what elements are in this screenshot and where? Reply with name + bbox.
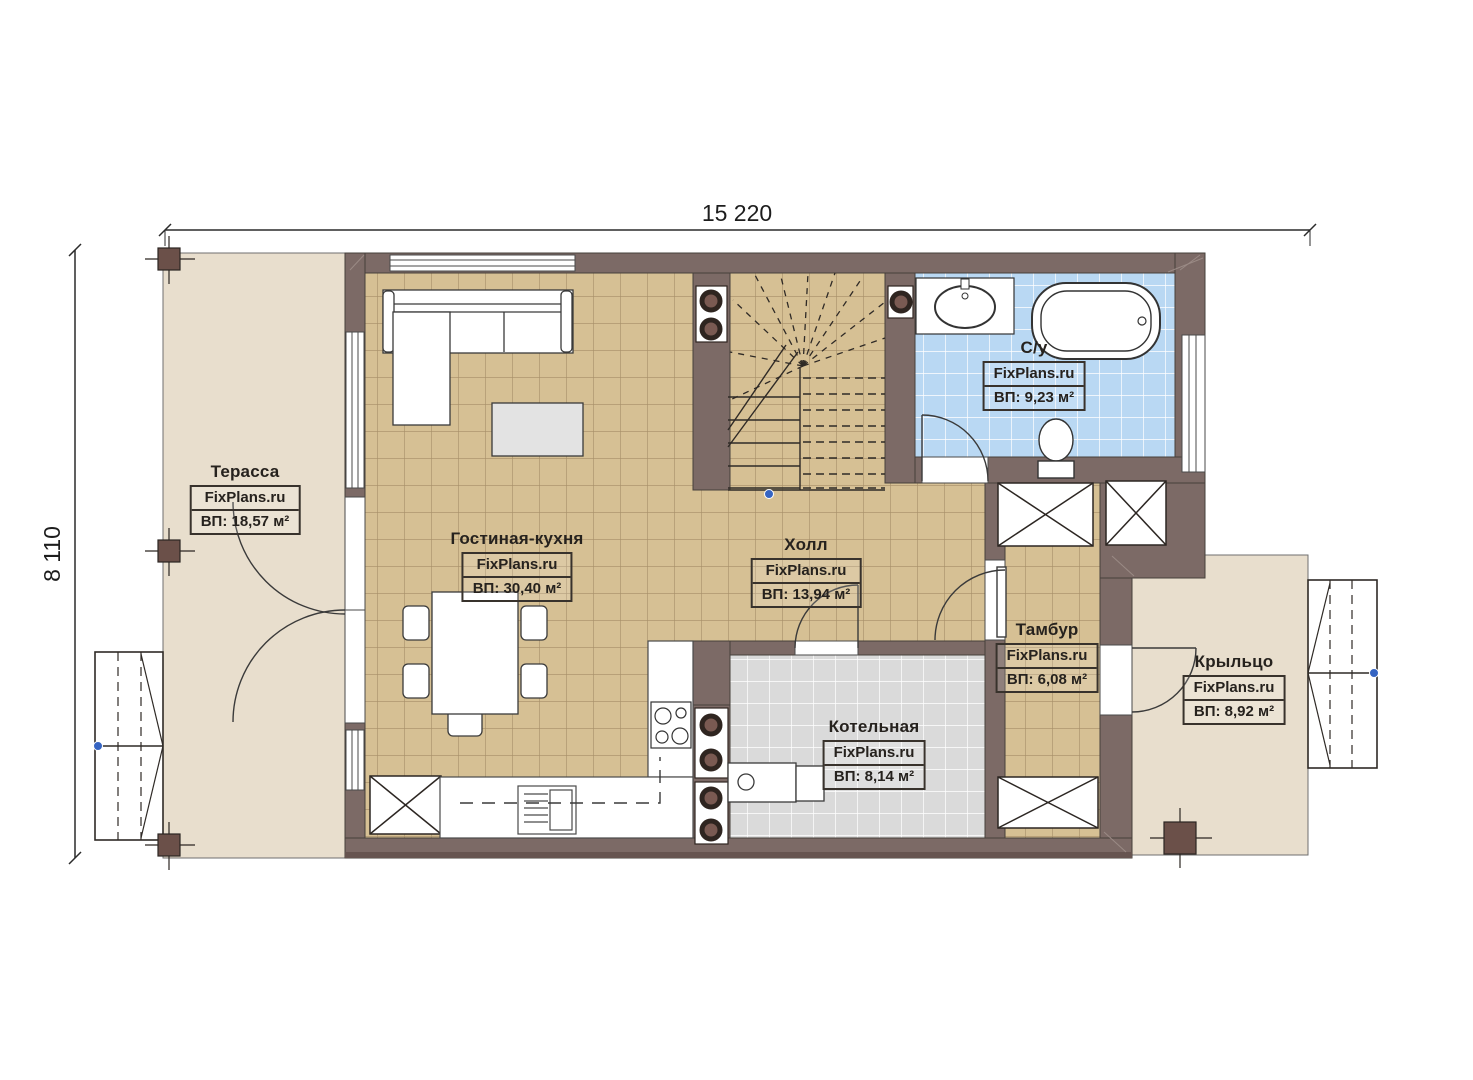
stove bbox=[651, 702, 691, 748]
flue-pipe-icon bbox=[702, 789, 720, 807]
shaft-hall bbox=[998, 483, 1093, 546]
room-info-box: FixPlans.ru ВП: 9,23 м² bbox=[983, 361, 1086, 411]
entry-door-opening bbox=[1100, 645, 1132, 715]
chair bbox=[403, 664, 429, 698]
terrace-floor bbox=[163, 253, 345, 858]
shaft-tambour bbox=[998, 777, 1098, 828]
vanity-sink bbox=[916, 278, 1014, 334]
chair bbox=[403, 606, 429, 640]
room-area: ВП: 18,57 м² bbox=[192, 509, 299, 533]
brand-text: FixPlans.ru bbox=[825, 742, 924, 764]
flue-pipe-icon bbox=[702, 292, 720, 310]
room-name: С/у bbox=[983, 338, 1086, 358]
floor-plan-drawing: 15 220 8 110 bbox=[0, 0, 1473, 1080]
room-info-box: FixPlans.ru ВП: 6,08 м² bbox=[996, 643, 1099, 693]
room-name: Котельная bbox=[823, 717, 926, 737]
stairs-start-dot bbox=[765, 490, 774, 499]
window-bathroom-right bbox=[1182, 335, 1205, 472]
room-name: Крыльцо bbox=[1183, 652, 1286, 672]
room-info-box: FixPlans.ru ВП: 30,40 м² bbox=[462, 552, 573, 602]
flue-pipe-icon bbox=[892, 293, 910, 311]
dining-table bbox=[432, 592, 518, 714]
flue-pipe-icon bbox=[702, 751, 720, 769]
boiler-unit bbox=[728, 763, 824, 802]
flue-pipe-icon bbox=[702, 716, 720, 734]
dimension-width-label: 15 220 bbox=[702, 200, 772, 226]
toilet bbox=[1038, 419, 1074, 478]
room-label-living-kitchen: Гостиная-кухня FixPlans.ru ВП: 30,40 м² bbox=[450, 529, 583, 602]
room-label-hall: Холл FixPlans.ru ВП: 13,94 м² bbox=[751, 535, 862, 608]
brand-text: FixPlans.ru bbox=[753, 560, 860, 582]
brand-text: FixPlans.ru bbox=[1185, 677, 1284, 699]
dimension-line-top bbox=[159, 224, 1316, 246]
boiler-door-opening bbox=[795, 641, 858, 655]
flue-pipe-icon bbox=[702, 320, 720, 338]
chair bbox=[521, 664, 547, 698]
brand-text: FixPlans.ru bbox=[464, 554, 571, 576]
room-info-box: FixPlans.ru ВП: 8,92 м² bbox=[1183, 675, 1286, 725]
porch-steps bbox=[1308, 580, 1377, 768]
room-label-porch: Крыльцо FixPlans.ru ВП: 8,92 м² bbox=[1183, 652, 1286, 725]
room-area: ВП: 6,08 м² bbox=[998, 667, 1097, 691]
room-info-box: FixPlans.ru ВП: 18,57 м² bbox=[190, 485, 301, 535]
shaft-kitchen-corner bbox=[370, 776, 441, 834]
room-info-box: FixPlans.ru ВП: 8,14 м² bbox=[823, 740, 926, 790]
room-name: Холл bbox=[751, 535, 862, 555]
brand-text: FixPlans.ru bbox=[998, 645, 1097, 667]
terrace-steps-dot bbox=[94, 742, 103, 751]
coffee-table bbox=[492, 403, 583, 456]
room-name: Гостиная-кухня bbox=[450, 529, 583, 549]
shaft-right-block bbox=[1106, 481, 1166, 545]
brand-text: FixPlans.ru bbox=[985, 363, 1084, 385]
room-area: ВП: 13,94 м² bbox=[753, 582, 860, 606]
floor-plan-page: 15 220 8 110 bbox=[0, 0, 1473, 1080]
room-area: ВП: 8,14 м² bbox=[825, 764, 924, 788]
dimension-height-label: 8 110 bbox=[39, 526, 65, 582]
room-label-bathroom: С/у FixPlans.ru ВП: 9,23 м² bbox=[983, 338, 1086, 411]
room-info-box: FixPlans.ru ВП: 13,94 м² bbox=[751, 558, 862, 608]
room-area: ВП: 9,23 м² bbox=[985, 385, 1084, 409]
window-top-living bbox=[390, 255, 575, 271]
room-name: Терасса bbox=[190, 462, 301, 482]
room-name: Тамбур bbox=[996, 620, 1099, 640]
bathroom-door-opening bbox=[922, 457, 988, 483]
porch-steps-dot bbox=[1370, 669, 1379, 678]
room-label-terrace: Терасса FixPlans.ru ВП: 18,57 м² bbox=[190, 462, 301, 535]
window-left-upper bbox=[346, 332, 364, 488]
window-left-lower bbox=[346, 730, 364, 790]
flue-pipe-icon bbox=[702, 821, 720, 839]
room-area: ВП: 30,40 м² bbox=[464, 576, 571, 600]
kitchen-sink bbox=[518, 786, 576, 834]
brand-text: FixPlans.ru bbox=[192, 487, 299, 509]
chair bbox=[521, 606, 547, 640]
room-area: ВП: 8,92 м² bbox=[1185, 699, 1284, 723]
dimension-line-left bbox=[69, 244, 81, 864]
room-label-boiler: Котельная FixPlans.ru ВП: 8,14 м² bbox=[823, 717, 926, 790]
room-label-tambour: Тамбур FixPlans.ru ВП: 6,08 м² bbox=[996, 620, 1099, 693]
terrace-steps bbox=[95, 652, 163, 840]
